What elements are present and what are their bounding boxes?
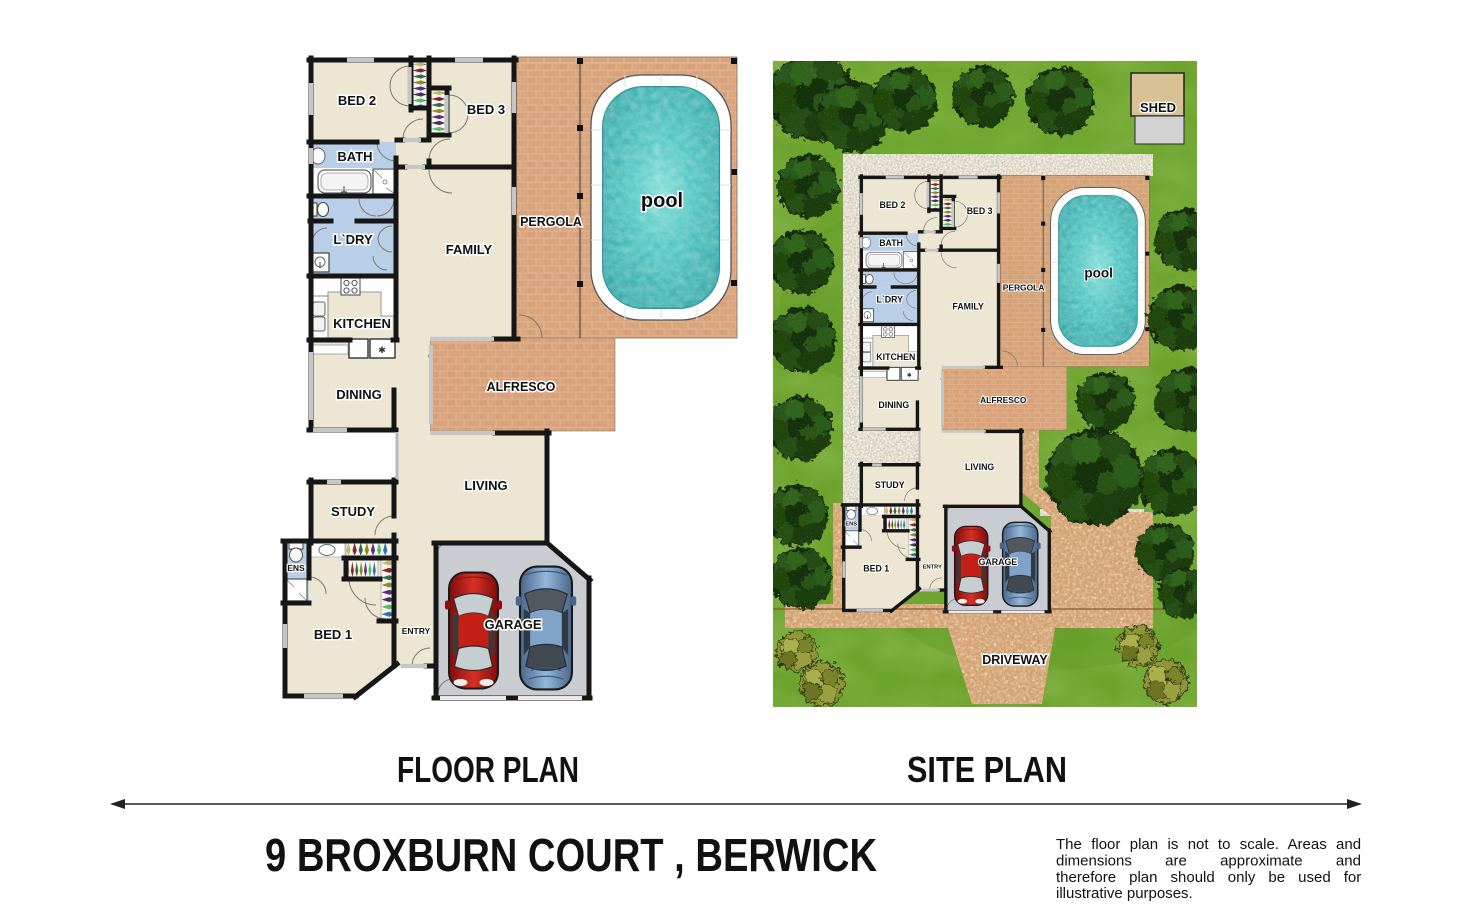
- svg-text:DRIVEWAY: DRIVEWAY: [982, 653, 1048, 667]
- svg-text:dimensions are approximate and: dimensions are approximate and: [1056, 853, 1361, 870]
- svg-text:illustrative purposes.: illustrative purposes.: [1056, 885, 1193, 902]
- svg-text:9 BROXBURN COURT , BERWICK: 9 BROXBURN COURT , BERWICK: [265, 829, 877, 881]
- svg-text:SHED: SHED: [1140, 100, 1176, 115]
- svg-text:therefore plan should only be: therefore plan should only be used for: [1056, 869, 1361, 886]
- svg-text:FLOOR PLAN: FLOOR PLAN: [397, 749, 579, 790]
- svg-text:SITE PLAN: SITE PLAN: [907, 749, 1067, 790]
- svg-text:The floor plan is not to scale: The floor plan is not to scale. Areas an…: [1056, 836, 1361, 853]
